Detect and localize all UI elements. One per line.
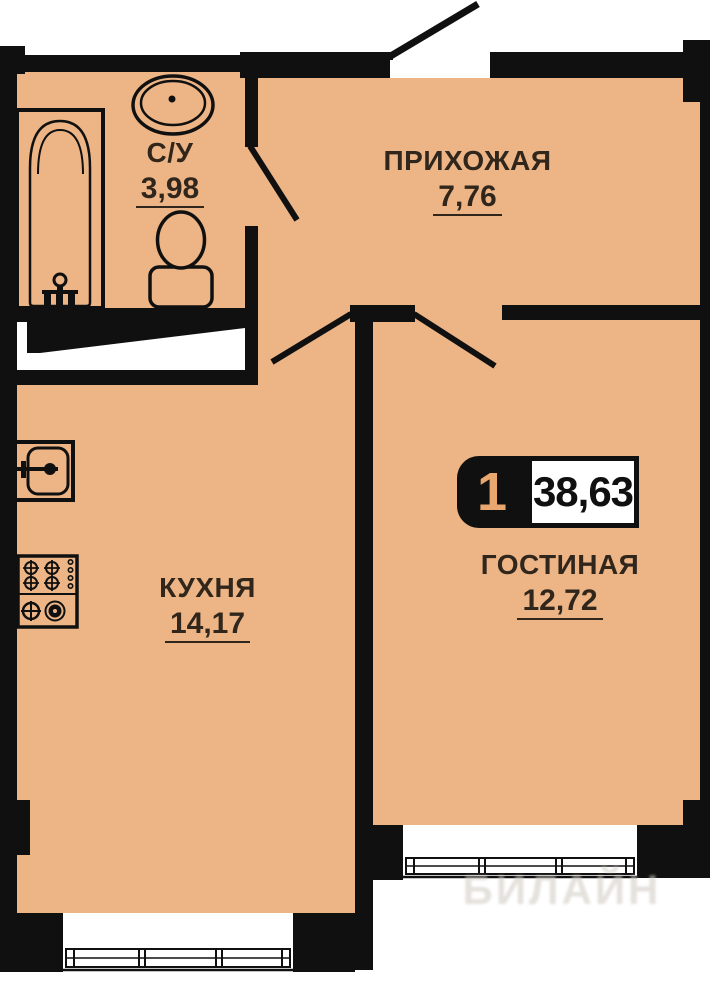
wall-segment bbox=[502, 305, 710, 320]
wall-segment bbox=[700, 100, 710, 826]
wall-segment bbox=[490, 52, 685, 78]
wall-segment bbox=[683, 40, 710, 102]
room-area: 3,98 bbox=[136, 174, 204, 208]
bathtub-icon bbox=[17, 110, 103, 308]
stove-icon bbox=[18, 556, 77, 627]
wall-pilaster bbox=[17, 800, 30, 855]
room-name: ПРИХОЖАЯ bbox=[375, 147, 560, 175]
rooms-count-badge: 1 bbox=[457, 456, 527, 528]
room-label-kitchen: КУХНЯ 14,17 bbox=[130, 574, 285, 643]
wall-segment bbox=[245, 52, 258, 147]
floorplan-canvas: С/У 3,98 ПРИХОЖАЯ 7,76 КУХНЯ 14,17 ГОСТИ… bbox=[0, 0, 710, 1000]
wall-segment bbox=[355, 825, 403, 880]
unit-badge: 1 38,63 bbox=[457, 456, 639, 528]
entrance-door-icon bbox=[384, 4, 478, 60]
wall-segment bbox=[637, 825, 710, 878]
bath-sink-icon bbox=[133, 76, 213, 134]
room-name: ГОСТИНАЯ bbox=[465, 551, 655, 579]
wall-segment bbox=[0, 370, 258, 385]
wall-segment bbox=[0, 55, 250, 72]
wall-segment bbox=[0, 48, 17, 972]
wall-segment bbox=[240, 52, 390, 78]
room-area: 12,72 bbox=[517, 586, 602, 620]
total-area-badge: 38,63 bbox=[527, 456, 639, 528]
room-label-hallway: ПРИХОЖАЯ 7,76 bbox=[375, 147, 560, 216]
wall-segment bbox=[683, 800, 710, 827]
wall-segment bbox=[245, 226, 258, 385]
living-window-icon bbox=[403, 825, 637, 880]
kitchen-sink-icon bbox=[15, 442, 73, 500]
room-name: С/У bbox=[100, 139, 240, 167]
room-name: КУХНЯ bbox=[130, 574, 285, 602]
room-label-living: ГОСТИНАЯ 12,72 bbox=[465, 551, 655, 620]
closet-icon bbox=[17, 322, 245, 370]
wall-segment bbox=[350, 305, 415, 322]
wall-segment bbox=[293, 913, 355, 972]
room-area: 14,17 bbox=[165, 609, 250, 643]
room-area: 7,76 bbox=[433, 182, 501, 216]
room-label-bathroom: С/У 3,98 bbox=[100, 139, 240, 208]
wall-segment bbox=[0, 913, 63, 972]
kitchen-window-icon bbox=[63, 913, 293, 972]
wall-segment bbox=[0, 308, 258, 322]
